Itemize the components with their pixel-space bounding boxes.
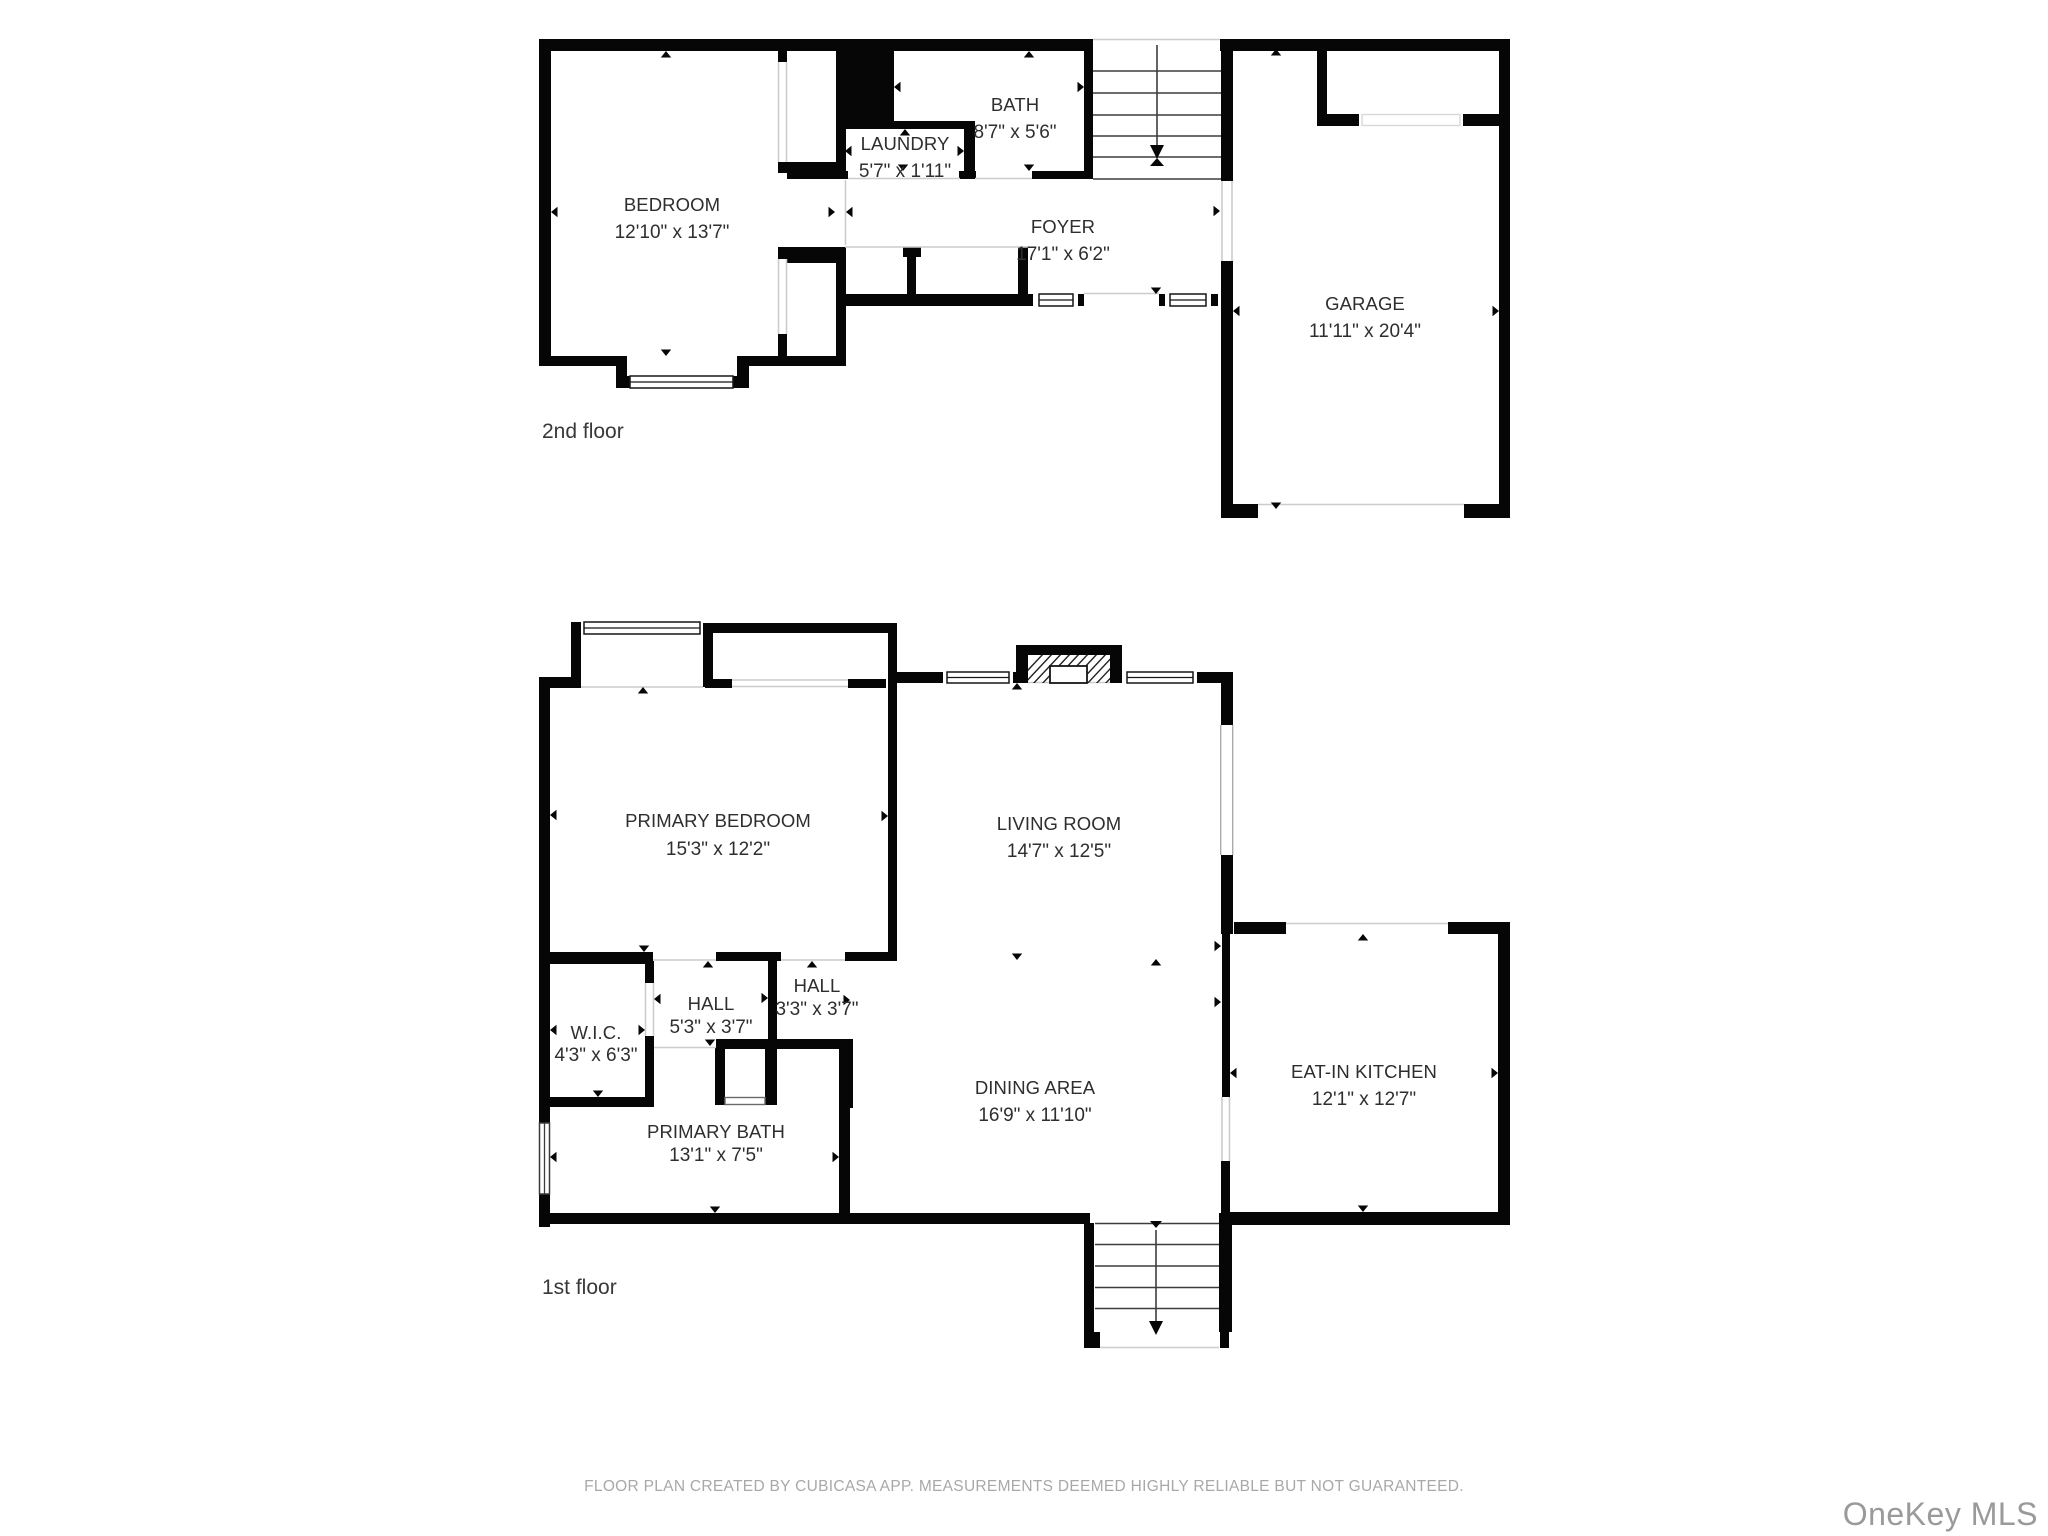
svg-text:4'3" x 6'3": 4'3" x 6'3" <box>554 1045 637 1066</box>
svg-text:5'3" x 3'7": 5'3" x 3'7" <box>669 1017 752 1038</box>
svg-text:14'7" x 12'5": 14'7" x 12'5" <box>1007 841 1111 862</box>
svg-text:12'10" x 13'7": 12'10" x 13'7" <box>615 222 730 243</box>
svg-text:OneKey MLS: OneKey MLS <box>1843 1496 2038 1532</box>
svg-text:12'1" x 12'7": 12'1" x 12'7" <box>1312 1089 1416 1110</box>
svg-text:2nd floor: 2nd floor <box>542 420 624 443</box>
svg-text:17'1" x 6'2": 17'1" x 6'2" <box>1016 244 1110 265</box>
svg-text:GARAGE: GARAGE <box>1325 293 1405 314</box>
svg-text:13'1" x 7'5": 13'1" x 7'5" <box>669 1145 763 1166</box>
svg-text:15'3" x 12'2": 15'3" x 12'2" <box>666 839 770 860</box>
svg-text:1st floor: 1st floor <box>542 1276 617 1299</box>
svg-text:W.I.C.: W.I.C. <box>571 1022 622 1043</box>
svg-text:11'11" x 20'4": 11'11" x 20'4" <box>1309 321 1421 342</box>
svg-text:5'7" x 1'11": 5'7" x 1'11" <box>859 161 951 182</box>
svg-text:3'3" x 3'7": 3'3" x 3'7" <box>775 999 858 1020</box>
svg-text:16'9" x 11'10": 16'9" x 11'10" <box>978 1105 1091 1126</box>
svg-text:LIVING ROOM: LIVING ROOM <box>997 813 1121 834</box>
svg-text:FOYER: FOYER <box>1031 216 1095 237</box>
svg-text:PRIMARY BATH: PRIMARY BATH <box>647 1121 785 1142</box>
svg-text:BATH: BATH <box>991 94 1039 115</box>
svg-text:8'7" x 5'6": 8'7" x 5'6" <box>973 122 1056 143</box>
svg-text:FLOOR PLAN CREATED BY CUBICASA: FLOOR PLAN CREATED BY CUBICASA APP. MEAS… <box>584 1478 1464 1495</box>
svg-text:DINING AREA: DINING AREA <box>975 1077 1096 1098</box>
svg-text:LAUNDRY: LAUNDRY <box>861 133 950 154</box>
svg-text:BEDROOM: BEDROOM <box>624 194 720 215</box>
svg-text:PRIMARY BEDROOM: PRIMARY BEDROOM <box>625 810 811 831</box>
svg-text:EAT-IN KITCHEN: EAT-IN KITCHEN <box>1291 1061 1437 1082</box>
svg-text:HALL: HALL <box>794 975 841 996</box>
svg-text:HALL: HALL <box>688 993 735 1014</box>
